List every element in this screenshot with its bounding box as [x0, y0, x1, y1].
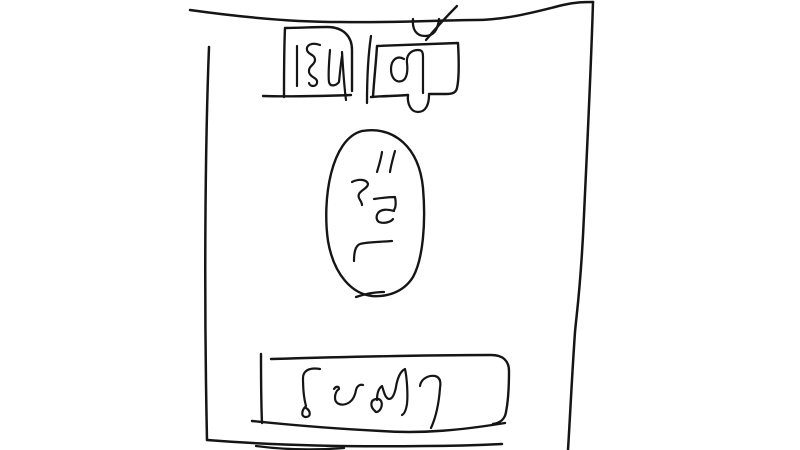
top-left-box-glyph-2 [307, 44, 320, 86]
room-wall-right [568, 2, 593, 450]
sofa-glyph-so [334, 385, 363, 405]
cabinet-box-left-stroke [367, 36, 371, 103]
drawing-canvas[interactable]: โซน ตู้ โต๊ะ โซฟา [0, 0, 800, 450]
sofa-box-outline [271, 355, 509, 424]
sofa-glyph-aa [420, 376, 440, 428]
cabinet-vowel-u-below [408, 95, 429, 112]
table-glyph-loop [374, 197, 396, 223]
table-glyph-mark-2 [390, 151, 395, 172]
sofa-box-bottom-edge [252, 421, 505, 432]
sofa-left-bar [261, 354, 262, 423]
room-wall-top [190, 2, 593, 22]
floor-plan-sketch [0, 0, 800, 450]
table-glyph-s-curve [352, 180, 368, 205]
cabinet-box-bottom-left-edge [371, 95, 408, 97]
cabinet-glyph-to-tao [391, 50, 423, 93]
room-wall-left [205, 47, 209, 440]
sofa-glyph-o [302, 368, 320, 417]
top-left-box-glyph-3-tail [342, 52, 346, 100]
top-left-box-bottom-edge [263, 95, 351, 96]
top-left-box-glyph-3 [329, 50, 342, 85]
table-oval-outline [326, 130, 424, 296]
room-wall-bottom [207, 440, 502, 446]
table-glyph-mark-1 [377, 152, 382, 172]
table-glyph-hook [354, 241, 392, 261]
sofa-glyph-fo [371, 369, 407, 415]
cabinet-tone-mark-slash [426, 6, 457, 40]
